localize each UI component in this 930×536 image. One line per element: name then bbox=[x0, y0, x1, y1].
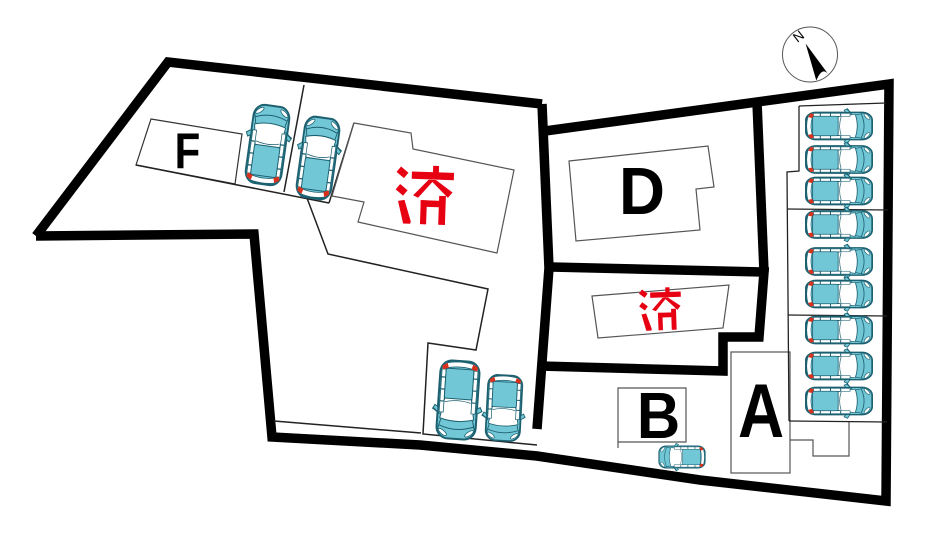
svg-text:B: B bbox=[637, 381, 680, 452]
svg-text:A: A bbox=[738, 368, 784, 454]
svg-text:F: F bbox=[175, 123, 201, 179]
svg-text:D: D bbox=[619, 154, 665, 229]
